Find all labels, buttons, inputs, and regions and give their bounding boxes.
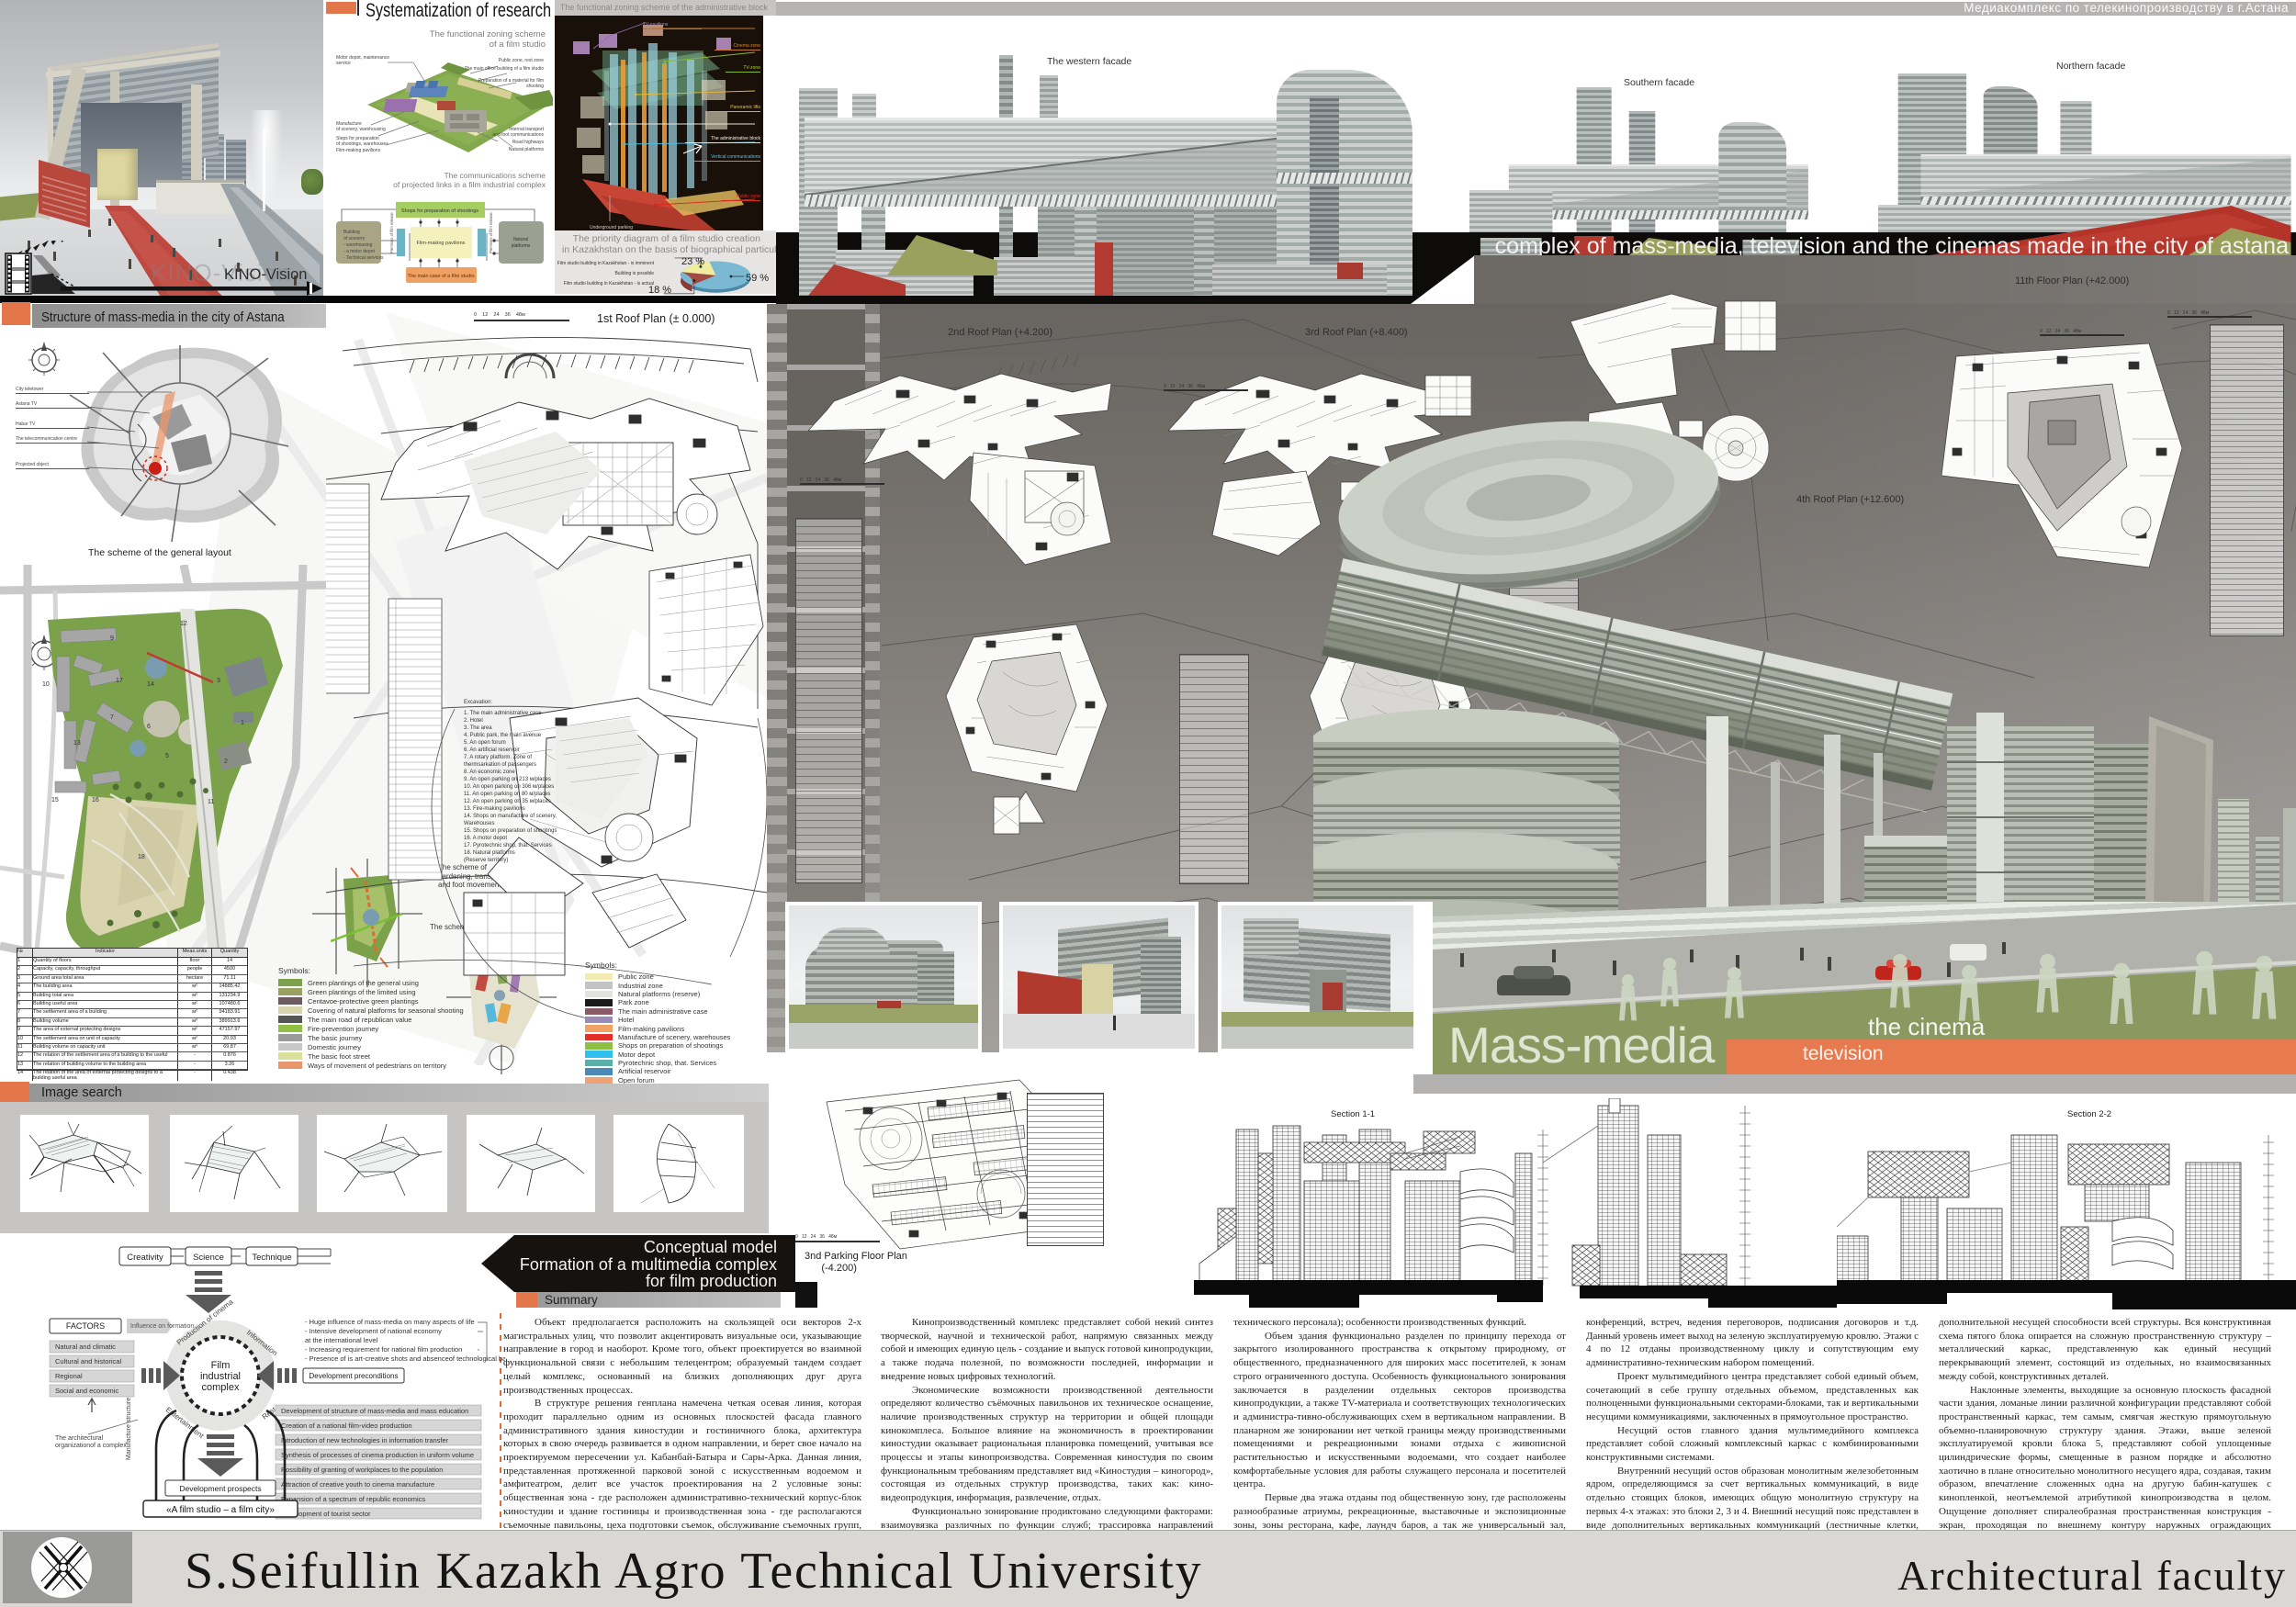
svg-text:Premises of film release: Premises of film release <box>489 212 493 253</box>
svg-text:- Increasing requirement for: - Increasing requirement for national fi… <box>305 1345 462 1354</box>
svg-text:Film: Film <box>211 1360 231 1371</box>
svg-text:Technique: Technique <box>252 1253 291 1263</box>
svg-text:8. An economic zone: 8. An economic zone <box>464 770 515 775</box>
svg-text:14. Shops on manufacture of sc: 14. Shops on manufacture of scenery, <box>464 814 557 819</box>
svg-text:2. Hotel: 2. Hotel <box>464 718 483 724</box>
svg-text:Development preconditions: Development preconditions <box>310 1372 399 1380</box>
svg-text:Excavation:: Excavation: <box>464 700 492 705</box>
svg-text:«A film studio – a film city»: «A film studio – a film city» <box>166 1505 275 1515</box>
svg-text:complex: complex <box>202 1382 240 1393</box>
svg-text:17. Pyrotechnic shop, that. Se: 17. Pyrotechnic shop, that. Services <box>464 843 552 848</box>
svg-text:Building: Building <box>343 230 360 235</box>
svg-text:2: 2 <box>224 759 228 765</box>
svg-text:Social and economic: Social and economic <box>55 1387 118 1395</box>
svg-text:Possibility of granting of wor: Possibility of granting of workplaces to… <box>281 1466 443 1474</box>
svg-text:4. Public park, the main avenu: 4. Public park, the main avenue <box>464 733 542 738</box>
svg-text:13: 13 <box>73 740 81 747</box>
svg-text:FACTORS: FACTORS <box>66 1321 105 1331</box>
svg-text:18: 18 <box>138 854 145 860</box>
svg-text:Film-making pavilions: Film-making pavilions <box>417 241 466 246</box>
svg-text:3: 3 <box>217 678 220 684</box>
svg-text:12: 12 <box>180 621 187 627</box>
svg-text:of scenery: of scenery <box>343 236 366 242</box>
svg-text:1: 1 <box>241 720 244 726</box>
svg-text:9: 9 <box>110 635 114 642</box>
svg-text:organizationof a complex: organizationof a complex <box>55 1443 127 1449</box>
svg-text:(Reserve territory): (Reserve territory) <box>464 858 508 863</box>
svg-text:16: 16 <box>92 797 99 803</box>
svg-text:11: 11 <box>208 799 214 805</box>
svg-text:platforms: platforms <box>512 243 531 249</box>
svg-text:14: 14 <box>147 681 154 688</box>
svg-text:Development prospects: Development prospects <box>179 1484 261 1493</box>
svg-text:Manufacture structure: Manufacture structure <box>126 1398 132 1460</box>
svg-text:Premises of film release: Premises of film release <box>389 212 394 253</box>
svg-text:17: 17 <box>116 678 123 684</box>
svg-text:1. The main administrative cas: 1. The main administrative case <box>464 711 542 716</box>
svg-text:Natural and climatic: Natural and climatic <box>55 1343 116 1351</box>
svg-text:- warehousing: - warehousing <box>343 242 373 248</box>
svg-text:Creation of a national film-vi: Creation of a national film-video produc… <box>281 1422 412 1430</box>
svg-text:The architectural: The architectural <box>55 1435 104 1442</box>
svg-text:The main case of a film studio: The main case of a film studio <box>407 274 474 279</box>
svg-text:9. An open parking on 213 м/pl: 9. An open parking on 213 м/places <box>464 777 551 782</box>
svg-text:10: 10 <box>42 681 50 688</box>
svg-text:- Huge influence of mass-medi: - Huge influence of mass-media on many a… <box>305 1318 475 1326</box>
svg-text:Influence on formation: Influence on formation <box>130 1323 194 1330</box>
svg-text:3. The area: 3. The area <box>464 725 492 731</box>
svg-text:- Technical services: - Technical services <box>343 255 384 261</box>
svg-text:Synthesis of processes of cine: Synthesis of processes of cinema product… <box>281 1451 474 1459</box>
svg-text:- a motor depot: - a motor depot <box>343 249 376 254</box>
svg-text:industrial: industrial <box>200 1371 241 1382</box>
svg-text:6. An artificial reservoir: 6. An artificial reservoir <box>464 747 520 753</box>
svg-text:Shops for preparation of shoot: Shops for preparation of shootings <box>401 208 478 214</box>
svg-text:15. Shops on preparation of sh: 15. Shops on preparation of shootings <box>464 828 557 834</box>
svg-text:10. An open parking on 306 м/p: 10. An open parking on 306 м/places <box>464 784 554 790</box>
svg-text:7: 7 <box>110 714 114 721</box>
svg-text:Creativity: Creativity <box>127 1253 163 1263</box>
svg-text:Expansion of a spectrum of rep: Expansion of a spectrum of republic econ… <box>281 1495 425 1503</box>
svg-text:Development of structure of ma: Development of structure of mass-media a… <box>281 1407 468 1415</box>
svg-text:Attraction of creative youth t: Attraction of creative youth to cinema m… <box>281 1480 434 1489</box>
svg-text:11. An open parking on 80 м/pl: 11. An open parking on 80 м/places <box>464 792 550 797</box>
svg-text:7. A rotary platform. Zone of: 7. A rotary platform. Zone of <box>464 755 532 760</box>
svg-text:Warehouses: Warehouses <box>464 821 494 826</box>
svg-text:18. Natural platforms: 18. Natural platforms <box>464 850 515 856</box>
svg-text:15: 15 <box>51 797 59 803</box>
svg-text:12. An open parking on 35 м/pl: 12. An open parking on 35 м/places <box>464 799 551 804</box>
svg-text:5: 5 <box>165 753 169 759</box>
svg-text:Natural: Natural <box>513 237 528 242</box>
svg-text:13. Fire-making pavilions: 13. Fire-making pavilions <box>464 806 525 812</box>
svg-text:Regional: Regional <box>55 1372 83 1380</box>
svg-text:Introduction of new technologi: Introduction of new technologies in info… <box>281 1436 449 1444</box>
svg-text:6: 6 <box>147 724 151 730</box>
svg-text:5. An open forum: 5. An open forum <box>464 740 506 746</box>
svg-text:thermsarkation of passengers: thermsarkation of passengers <box>464 762 536 768</box>
svg-text:16. A motor depot: 16. A motor depot <box>464 836 507 841</box>
svg-text:- Presence of is art-creative: - Presence of is art-creative shots and … <box>305 1354 505 1363</box>
svg-text:- Intensive development of na: - Intensive development of national econ… <box>305 1327 442 1335</box>
svg-text:at the international level: at the international level <box>305 1336 378 1344</box>
svg-text:Cultural and historical: Cultural and historical <box>55 1357 121 1365</box>
svg-text:Science: Science <box>193 1253 224 1263</box>
